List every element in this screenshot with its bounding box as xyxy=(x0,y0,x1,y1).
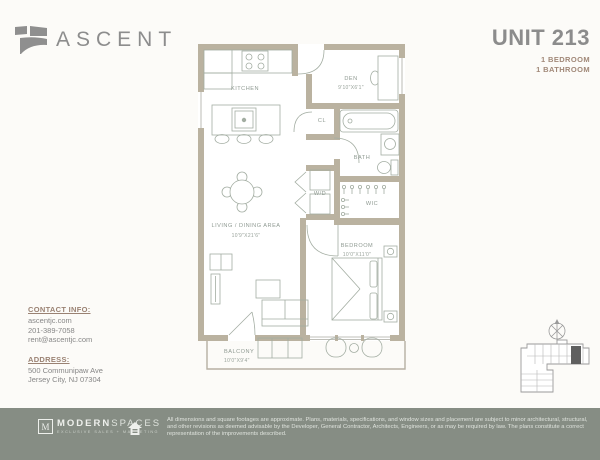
disclaimer-line3: representation of the improvements descr… xyxy=(167,431,597,438)
address-block: ADDRESS: 500 Communipaw Ave Jersey City,… xyxy=(28,355,103,385)
closet-label: CL xyxy=(318,118,326,124)
den-dims: 9'10"X6'1" xyxy=(338,85,364,91)
modern-spaces-logo: M MODERNSPACES EXCLUSIVE SALES + MARKETI… xyxy=(38,419,161,434)
key-plan xyxy=(513,318,595,396)
address-heading: ADDRESS: xyxy=(28,355,103,364)
brand-logo: ASCENT xyxy=(14,24,177,56)
disclaimer-line2: and other revisions as deemed advisable … xyxy=(167,424,597,431)
brand-name: ASCENT xyxy=(56,28,177,52)
kitchen-label: KITCHEN xyxy=(231,86,259,92)
contact-email: rent@ascentjc.com xyxy=(28,335,103,345)
wic-label: WIC xyxy=(366,201,378,207)
contact-phone: 201-389-7058 xyxy=(28,326,103,336)
unit-title: UNIT 213 xyxy=(492,25,590,51)
den-label: DEN xyxy=(344,76,357,82)
washer-dryer-label: W/D xyxy=(314,191,326,197)
footer-band: M MODERNSPACES EXCLUSIVE SALES + MARKETI… xyxy=(0,408,600,460)
disclaimer-line1: All dimensions and square footages are a… xyxy=(167,417,597,424)
living-dining-label: LIVING / DINING AREA xyxy=(211,223,280,229)
bedroom-dims: 10'0"X11'0" xyxy=(343,252,371,258)
floor-plan: KITCHEN DEN 9'10"X6'1" CL BATH W/D WIC L… xyxy=(194,42,408,374)
highlighted-unit xyxy=(571,346,581,364)
living-dining-dims: 10'9"X21'6" xyxy=(232,233,261,239)
balcony-dims: 10'0"X9'4" xyxy=(224,358,250,364)
ascent-logo-icon xyxy=(14,24,48,56)
bath-label: BATH xyxy=(354,155,371,161)
unit-bedrooms: 1 BEDROOM xyxy=(492,55,590,65)
equal-housing-icon xyxy=(128,422,142,436)
modern-spaces-name: MODERNSPACES xyxy=(57,419,161,428)
address-line2: Jersey City, NJ 07304 xyxy=(28,375,103,385)
bedroom-label: BEDROOM xyxy=(341,243,373,249)
balcony-label: BALCONY xyxy=(224,349,254,355)
unit-bathrooms: 1 BATHROOM xyxy=(492,65,590,75)
disclaimer-text: All dimensions and square footages are a… xyxy=(167,417,597,439)
contact-heading: CONTACT INFO: xyxy=(28,305,103,314)
address-line1: 500 Communipaw Ave xyxy=(28,366,103,376)
unit-info: UNIT 213 1 BEDROOM 1 BATHROOM xyxy=(492,25,590,75)
compass-icon xyxy=(549,319,565,341)
contact-block: CONTACT INFO: ascentjc.com 201-389-7058 … xyxy=(28,305,103,385)
flyer-page: ASCENT UNIT 213 1 BEDROOM 1 BATHROOM xyxy=(0,0,600,460)
modern-spaces-initial: M xyxy=(38,419,53,434)
modern-spaces-name-bold: MODERN xyxy=(57,418,111,429)
contact-website: ascentjc.com xyxy=(28,316,103,326)
modern-spaces-tagline: EXCLUSIVE SALES + MARKETING xyxy=(57,430,161,434)
